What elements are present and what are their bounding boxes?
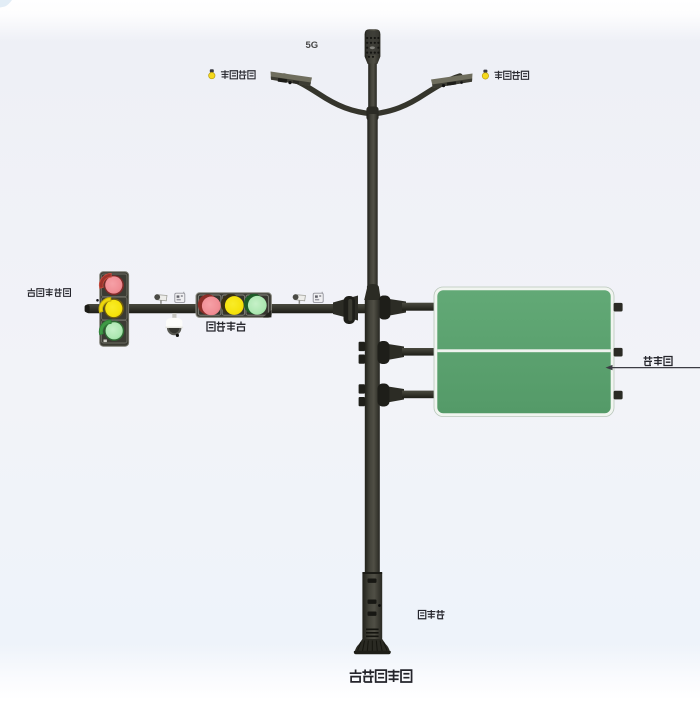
svg-text:5G: 5G [306,40,319,51]
